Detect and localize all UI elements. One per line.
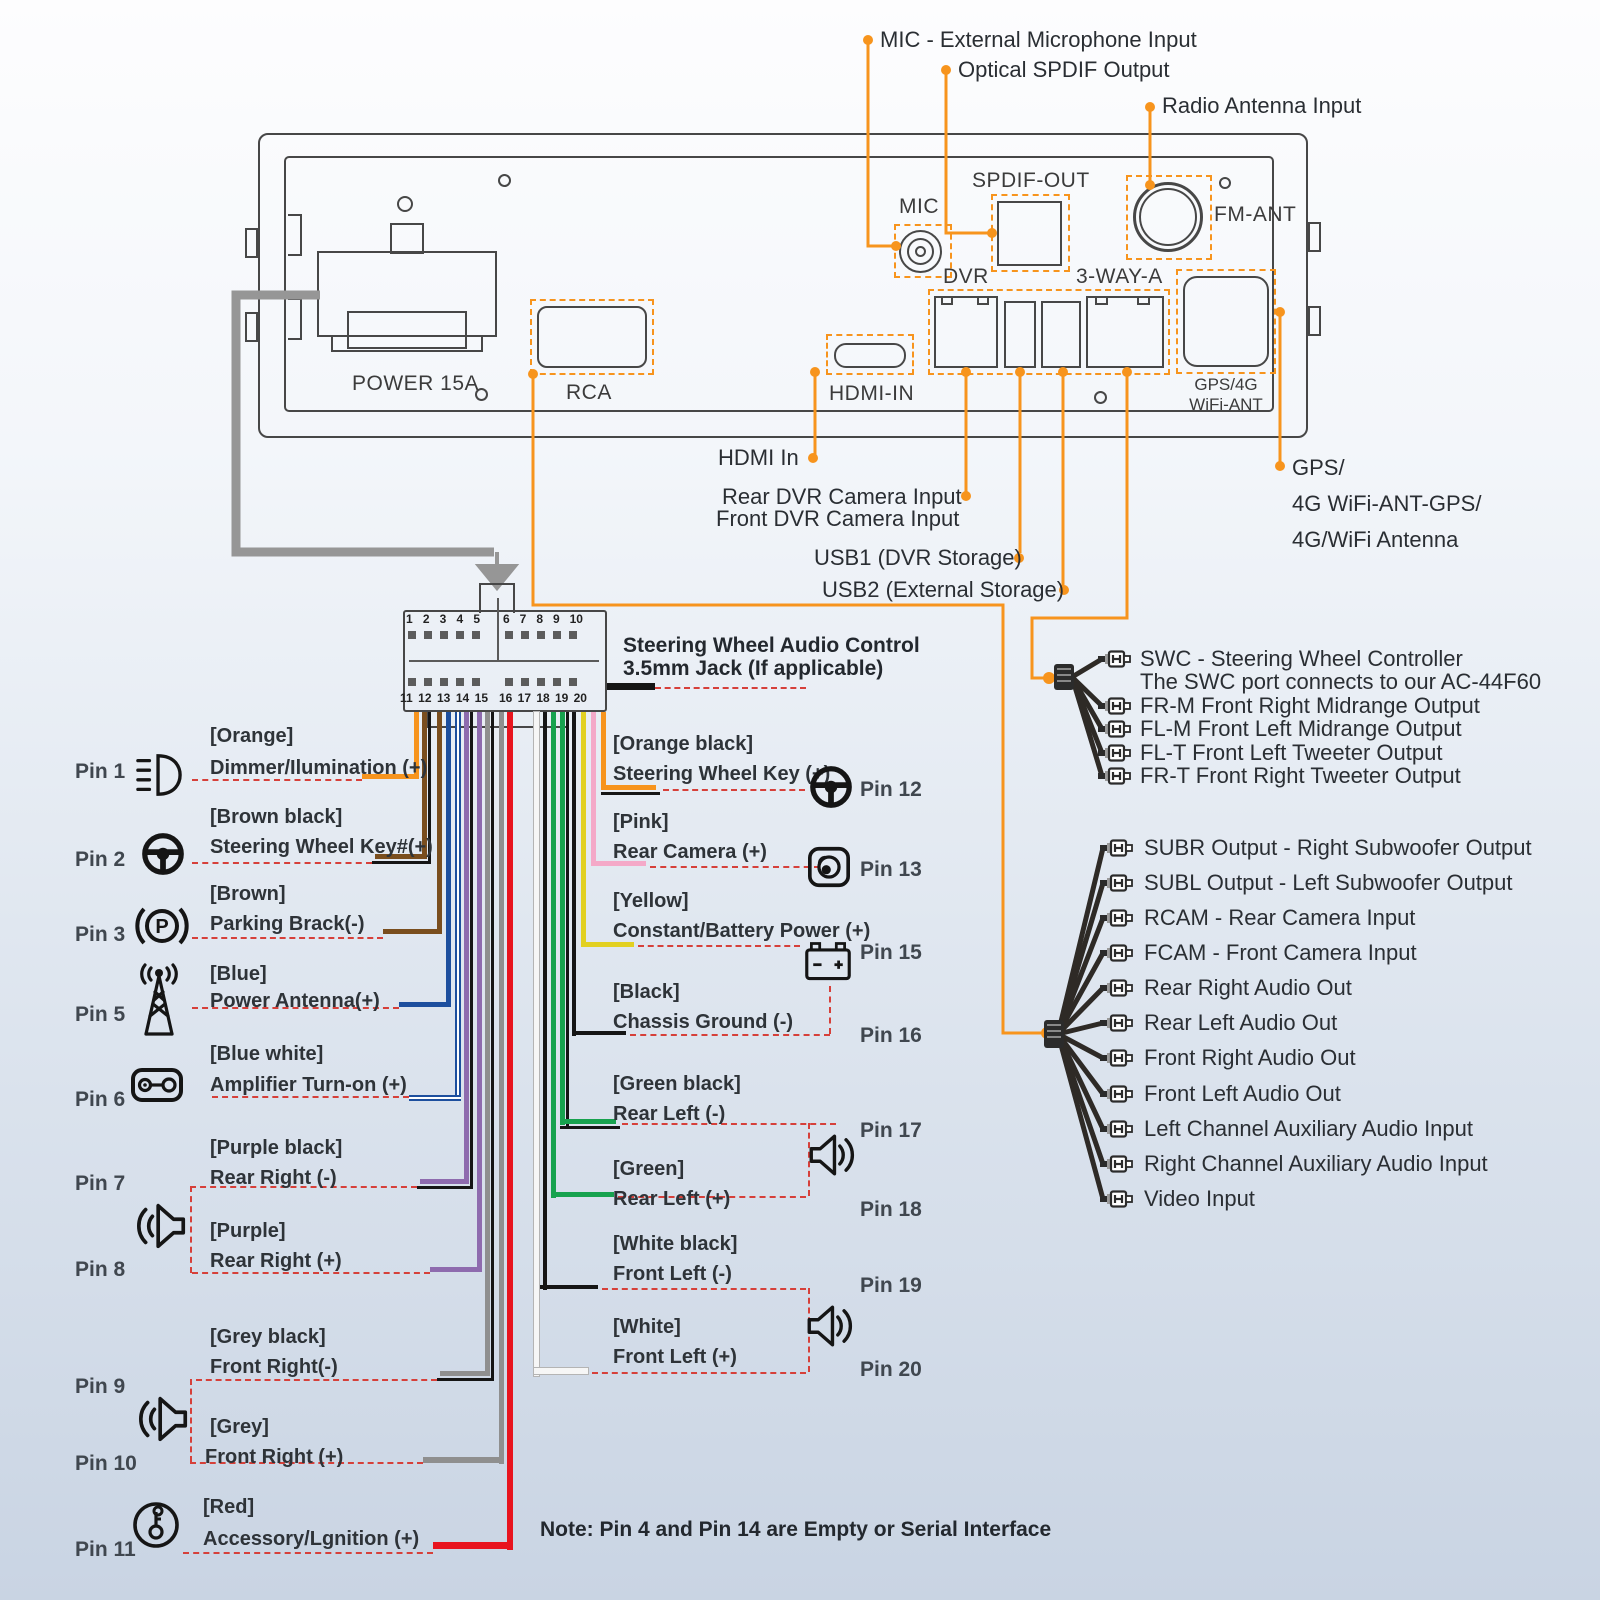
swc-jack-title: Steering Wheel Audio Control 3.5mm Jack … (623, 634, 920, 680)
rca-plug-icon (1100, 838, 1134, 858)
rca-item-rear-right: Rear Right Audio Out (1144, 975, 1352, 1001)
wire-purpleblack-stripe-h (417, 1186, 473, 1189)
pin-11-color: [Red] (203, 1496, 254, 1519)
rca-item-aux-left: Left Channel Auxiliary Audio Input (1144, 1116, 1473, 1142)
wire-greyblack-stripe-v (491, 712, 494, 1381)
dash-pin12 (663, 789, 805, 791)
pin-19-label: Pin 19 (860, 1274, 922, 1298)
pin-number: 13 (437, 691, 450, 705)
wire-greenblack-stripe-h (560, 1126, 620, 1129)
rca-plug-icon (1100, 1084, 1134, 1104)
pin-number: 16 (499, 691, 512, 705)
rca-item-fcam: FCAM - Front Camera Input (1144, 940, 1417, 966)
pin-number: 7 (520, 612, 527, 626)
wire-blue-h (399, 1002, 451, 1007)
rca-item-subr: SUBR Output - Right Subwoofer Output (1144, 835, 1532, 861)
rca-plug-icon (1098, 743, 1132, 763)
callout-gps-line3: 4G/WiFi Antenna (1292, 527, 1458, 553)
pin-16-function: Chassis Ground (-) (613, 1011, 793, 1034)
pin-20-label: Pin 20 (860, 1358, 922, 1382)
wire-bluewhite-v (455, 712, 461, 1100)
wiring-diagram-page: { "top_callouts": { "mic": "MIC - Extern… (0, 0, 1600, 1600)
dash-pin16 (630, 1034, 830, 1036)
amplifier-icon (131, 1068, 183, 1102)
speaker-icon (803, 1299, 853, 1353)
three-way-to-swc-line (1032, 374, 1127, 678)
pin-5-function: Power Antenna(+) (210, 990, 380, 1013)
headlight-icon (134, 752, 184, 798)
dash-pin2 (192, 862, 372, 864)
wire-whiteblack-h (540, 1285, 598, 1289)
wire-pink-v (591, 712, 596, 866)
pin-number: 14 (456, 691, 469, 705)
mic-callout-line (868, 44, 893, 246)
pin-10-color: [Grey] (210, 1416, 269, 1439)
pin-numbers-1-5: 12345 (406, 612, 480, 626)
pin-number: 3 (440, 612, 447, 626)
pin-17-function: Rear Left (-) (613, 1103, 725, 1126)
wire-black-v (572, 712, 576, 1036)
pin-number: 10 (570, 612, 583, 626)
wire-greenblack-stripe-v (566, 712, 569, 1129)
pin-7-color: [Purple black] (210, 1137, 342, 1160)
rca-plug-icon (1098, 649, 1132, 669)
rca-plug-icon (1098, 766, 1132, 786)
callout-usb1: USB1 (DVR Storage) (814, 545, 1022, 571)
pin-12-label: Pin 12 (860, 778, 922, 802)
pin-11-label: Pin 11 (75, 1538, 136, 1562)
pin-number: 1 (406, 612, 413, 626)
swc-hub-connector (1054, 664, 1074, 690)
pin-3-function: Parking Brack(-) (210, 913, 365, 936)
pin-numbers-11-15: 1112131415 (400, 691, 488, 705)
callout-gps-line2: 4G WiFi-ANT-GPS/ (1292, 491, 1481, 517)
pin-number: 9 (553, 612, 560, 626)
rca-plug-icon (1100, 908, 1134, 928)
rca-plug-icon (1100, 978, 1134, 998)
pin-8-label: Pin 8 (75, 1258, 125, 1282)
pin-pads-top-right (505, 631, 577, 639)
wire-yellow-v (581, 712, 586, 947)
wire-greenblack-v (560, 712, 565, 1125)
wire-green-v (551, 712, 556, 1198)
rca-plug-icon (1100, 1013, 1134, 1033)
pin-number: 19 (555, 691, 568, 705)
rca-plug-icon (1100, 873, 1134, 893)
parking-brake-icon (134, 902, 190, 950)
wire-white-v (534, 712, 539, 1376)
rca-item-rear-left: Rear Left Audio Out (1144, 1010, 1337, 1036)
wire-purpleblack-v (464, 712, 469, 1184)
wire-grey-h (423, 1457, 504, 1463)
pin-10-function: Front Right (+) (205, 1446, 343, 1469)
pin-1-label: Pin 1 (75, 760, 125, 784)
rca-item-subl: SUBL Output - Left Subwoofer Output (1144, 870, 1513, 896)
pin-18-function: Rear Left (+) (613, 1188, 730, 1211)
pin-17-label: Pin 17 (860, 1119, 922, 1143)
callout-front-dvr: Front DVR Camera Input (716, 506, 959, 532)
wire-white-h (534, 1368, 588, 1374)
swc-jack-title-line2: 3.5mm Jack (If applicable) (623, 657, 920, 680)
pin-19-function: Front Left (-) (613, 1263, 732, 1286)
battery-icon (804, 938, 852, 984)
dash-pin9 (196, 1379, 437, 1381)
pin-pads-bottom-left (408, 678, 480, 686)
pin-5-label: Pin 5 (75, 1003, 125, 1027)
pin-number: 20 (574, 691, 587, 705)
rca-plug-icon (1100, 1154, 1134, 1174)
pin-number: 5 (473, 612, 480, 626)
pin-1-color: [Orange] (210, 725, 293, 748)
pin-6-color: [Blue white] (210, 1043, 323, 1066)
pin-number: 2 (423, 612, 430, 626)
steering-wheel-icon (808, 764, 854, 810)
pin-20-color: [White] (613, 1316, 681, 1339)
pin-number: 8 (536, 612, 543, 626)
pin-15-color: [Yellow] (613, 890, 689, 913)
dash-pin15 (638, 945, 800, 947)
wire-purpleblack-stripe-v (470, 712, 473, 1189)
dash-pin13 (650, 866, 820, 868)
pin-5-color: [Blue] (210, 963, 267, 986)
pin-3-label: Pin 3 (75, 923, 125, 947)
rca-plug-icon (1098, 719, 1132, 739)
pin-18-label: Pin 18 (860, 1198, 922, 1222)
ignition-key-icon (131, 1500, 181, 1550)
pin-3-color: [Brown] (210, 883, 286, 906)
pin-number: 11 (400, 691, 413, 705)
swc-jack-title-line1: Steering Wheel Audio Control (623, 634, 920, 657)
wire-purple-h (430, 1267, 482, 1272)
pin-number: 12 (418, 691, 431, 705)
rca-item-video: Video Input (1144, 1186, 1255, 1212)
pin-9-label: Pin 9 (75, 1375, 125, 1399)
wire-blue-v (446, 712, 451, 1007)
wire-brownblack-stripe-h (372, 861, 431, 864)
connector-divider-h (409, 660, 599, 662)
empty-pins-note: Note: Pin 4 and Pin 14 are Empty or Seri… (540, 1518, 1051, 1542)
pin-number: 17 (518, 691, 531, 705)
rca-item-front-right: Front Right Audio Out (1144, 1045, 1356, 1071)
dash-pin7-8-link (190, 1186, 192, 1273)
pin-number: 6 (503, 612, 510, 626)
rca-item-aux-right: Right Channel Auxiliary Audio Input (1144, 1151, 1488, 1177)
jack-lead-wire (607, 683, 655, 690)
rca-item-front-left: Front Left Audio Out (1144, 1081, 1341, 1107)
rca-plug-icon (1100, 1048, 1134, 1068)
wire-greenblack-h (560, 1119, 616, 1124)
pin-6-label: Pin 6 (75, 1088, 125, 1112)
callout-gps-line1: GPS/ (1292, 455, 1345, 481)
wire-orangeblack-stripe-h (601, 792, 660, 795)
pin-17-color: [Green black] (613, 1073, 741, 1096)
swc-item-frt: FR-T Front Right Tweeter Output (1140, 763, 1461, 789)
wire-whiteblack-v (543, 712, 547, 1290)
pin-numbers-16-20: 1617181920 (499, 691, 587, 705)
spdif-callout-line (946, 74, 990, 233)
wire-brown-h (383, 929, 442, 934)
pin-13-color: [Pink] (613, 811, 669, 834)
dash-pin20 (592, 1372, 806, 1374)
pin-15-label: Pin 15 (860, 941, 922, 965)
callout-mic: MIC - External Microphone Input (880, 27, 1197, 53)
camera-icon (806, 846, 852, 888)
pin-number: 18 (536, 691, 549, 705)
pin-13-function: Rear Camera (+) (613, 841, 767, 864)
wire-greyblack-stripe-h (437, 1378, 494, 1381)
dash-pin3 (192, 937, 383, 939)
power-feed-line (236, 295, 494, 552)
pin-20-function: Front Left (+) (613, 1346, 737, 1369)
pin-8-color: [Purple] (210, 1220, 286, 1243)
wire-brown-v (437, 712, 442, 934)
wire-greyblack-v (485, 712, 490, 1376)
wire-purple-v (477, 712, 482, 1272)
wire-red-h (433, 1542, 513, 1549)
pin-9-color: [Grey black] (210, 1326, 326, 1349)
pin-2-label: Pin 2 (75, 848, 125, 872)
swc-item-flm: FL-M Front Left Midrange Output (1140, 716, 1462, 742)
pin-13-label: Pin 13 (860, 858, 922, 882)
pin-18-color: [Green] (613, 1158, 684, 1181)
pin-number: 15 (475, 691, 488, 705)
rca-plug-icon (1100, 1189, 1134, 1209)
pin-number: 4 (456, 612, 463, 626)
pin-7-function: Rear Right (-) (210, 1167, 337, 1190)
wire-grey-v (499, 712, 504, 1464)
pin-pads-top-left (408, 631, 480, 639)
pin-12-color: [Orange black] (613, 733, 753, 756)
jack-lead-dash (655, 687, 806, 689)
wire-purpleblack-h (420, 1179, 469, 1184)
pin-16-label: Pin 16 (860, 1024, 922, 1048)
callout-radio: Radio Antenna Input (1162, 93, 1361, 119)
connector-divider-v (497, 598, 499, 662)
callout-usb2: USB2 (External Storage) (822, 577, 1064, 603)
rca-plug-icon (1100, 1119, 1134, 1139)
pin-pads-bottom-right (505, 678, 577, 686)
wire-green-h (551, 1192, 614, 1197)
speaker-icon (805, 1128, 855, 1182)
dash-battery-link (829, 986, 831, 1034)
speaker-icon (136, 1198, 190, 1254)
wire-bluewhite-h (409, 1095, 461, 1101)
callout-spdif: Optical SPDIF Output (958, 57, 1170, 83)
dash-pin19 (602, 1288, 806, 1290)
pin-7-label: Pin 7 (75, 1172, 125, 1196)
rca-hub-connector (1044, 1020, 1064, 1048)
swc-line2: The SWC port connects to our AC-44F60 (1140, 669, 1541, 695)
wire-orangeblack-v (601, 712, 606, 790)
antenna-icon (133, 962, 185, 1038)
rca-plug-icon (1098, 696, 1132, 716)
steering-wheel-icon (140, 831, 186, 877)
speaker-icon (138, 1391, 192, 1447)
pin-2-color: [Brown black] (210, 806, 342, 829)
pin-16-color: [Black] (613, 981, 680, 1004)
rca-plug-icon (1100, 943, 1134, 963)
rca-item-rcam: RCAM - Rear Camera Input (1144, 905, 1415, 931)
wire-red-v (507, 712, 513, 1550)
pin-19-color: [White black] (613, 1233, 737, 1256)
pin-numbers-6-10: 678910 (503, 612, 583, 626)
pin-6-function: Amplifier Turn-on (+) (210, 1074, 407, 1097)
pin-1-function: Dimmer/Ilumination (+) (210, 757, 427, 780)
pin-11-function: Accessory/Lgnition (+) (203, 1528, 419, 1551)
pin-8-function: Rear Right (+) (210, 1250, 342, 1273)
dash-pin11 (183, 1552, 433, 1554)
rca-cable-fan (1058, 848, 1103, 1199)
pin-10-label: Pin 10 (75, 1452, 137, 1476)
pin-2-function: Steering Wheel Key#(+) (210, 836, 433, 859)
callout-hdmi-in: HDMI In (718, 445, 799, 471)
pin-9-function: Front Right(-) (210, 1356, 338, 1379)
wire-greyblack-h (440, 1371, 490, 1376)
pin-12-function: Steering Wheel Key (+) (613, 763, 830, 786)
